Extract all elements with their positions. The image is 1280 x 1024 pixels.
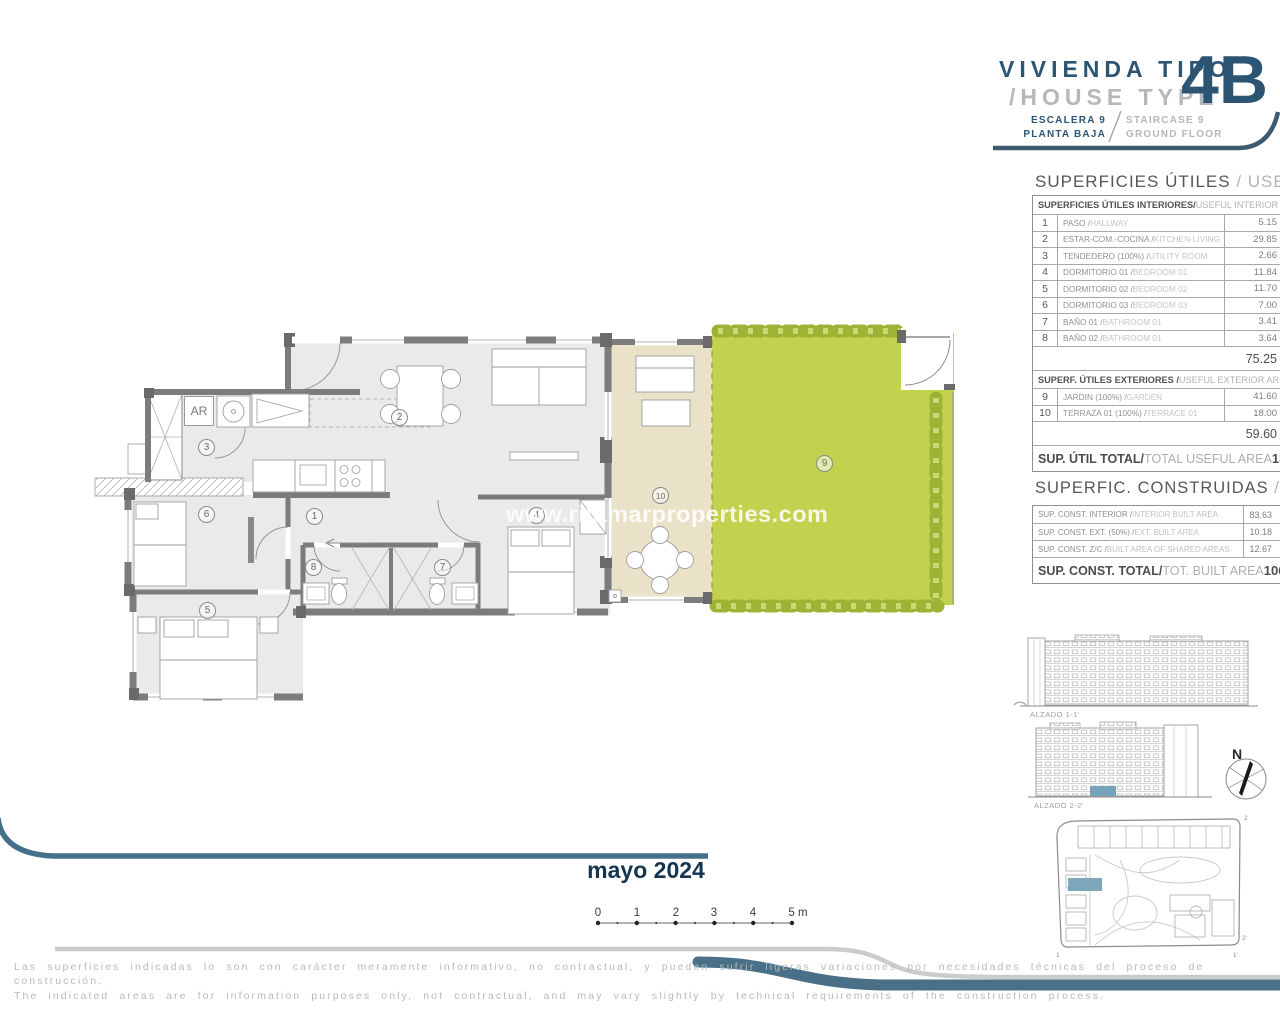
scale-tick-5m: 5 m: [788, 907, 807, 919]
useful-total-row: SUP. ÚTIL TOTAL/TOTAL USEFUL AREA134.85: [1033, 445, 1280, 471]
north-arrow-icon: N: [1226, 746, 1266, 799]
table-row: SUP. CONST. Z/C / BUILT AREA OF SHARED A…: [1033, 540, 1280, 557]
room-number-8: 8: [305, 559, 322, 576]
escalera-label: ESCALERA 9: [1000, 114, 1106, 128]
table-row: 7BAÑO 01 / BATHROOM 013.41: [1033, 313, 1280, 330]
wardrobe-ar-label: AR: [184, 396, 214, 426]
elevation-1-label: ALZADO 1-1': [1030, 710, 1080, 719]
planta-label: PLANTA BAJA: [1000, 128, 1106, 142]
chair: [381, 370, 400, 389]
terrace-table: [640, 540, 680, 580]
table-row: 8BAÑO 02 / BATHROOM 013.64: [1033, 330, 1280, 347]
site-marker-2: 2: [1244, 815, 1248, 822]
built-area-title: SUPERFIC. CONSTRUIDAS /BUILT AREA: [1035, 479, 1280, 498]
staircase-floor-es: ESCALERA 9 PLANTA BAJA: [1000, 114, 1106, 142]
built-area-table: SUP. CONST. INTERIOR / INTERIOR BUILT AR…: [1032, 505, 1280, 584]
table-row: SUP. CONST. EXT. (50%) / EXT. BUILT AREA…: [1033, 523, 1280, 540]
exterior-subtotal-row: 59.60: [1033, 421, 1280, 445]
disclaimer-en: The indicated areas are for information …: [14, 989, 1268, 1003]
elevation-1: ALZADO 1-1': [1014, 635, 1258, 719]
site-marker-2p: 2': [1242, 935, 1247, 942]
date-label: mayo 2024: [587, 857, 705, 884]
toilet: [332, 584, 347, 605]
built-total-row: SUP. CONST. TOTAL/TOT. BUILT AREA106.49: [1033, 557, 1280, 583]
disclaimer-es: Las superficies indicadas lo son con car…: [14, 960, 1268, 988]
interior-subtotal-row: 75.25: [1033, 346, 1280, 370]
room-number-1: 1: [306, 508, 323, 525]
garden-gate: [897, 328, 955, 390]
room-number-2: 2: [391, 409, 408, 426]
highlighted-unit: [1090, 786, 1116, 796]
chair: [442, 370, 461, 389]
room-number-6: 6: [198, 506, 215, 523]
house-type-code: 4B: [1181, 46, 1268, 114]
interior-header: SUPERFICIES ÚTILES INTERIORES/ USEFUL IN…: [1033, 196, 1280, 214]
elevation-2: ALZADO 2-2': [1028, 722, 1212, 810]
staircase-label: STAIRCASE 9: [1126, 114, 1223, 128]
scale-tick-3: 3: [711, 907, 717, 919]
scale-tick-4: 4: [750, 907, 756, 919]
elevation-2-label: ALZADO 2-2': [1034, 801, 1084, 810]
ground-floor-label: GROUND FLOOR: [1126, 128, 1223, 142]
exterior-header: SUPERF. ÚTILES EXTERIORES / USEFUL EXTER…: [1033, 370, 1280, 388]
scale-tick-1: 1: [634, 907, 640, 919]
terrace-sofa: [636, 356, 694, 392]
toilet: [430, 584, 445, 605]
column: [609, 590, 621, 602]
scale-tick-0: 0: [595, 907, 601, 919]
chair: [442, 405, 461, 424]
room-number-9: 9: [816, 455, 833, 472]
table-row: 3TENDEDERO (100%) / UTILITY ROOM2.66: [1033, 247, 1280, 264]
table-row: 1PASO / HALLWAY5.15: [1033, 214, 1280, 231]
table-row: 6DORMITORIO 03 / BEDROOM 037.00: [1033, 297, 1280, 314]
highlighted-plot: [1068, 878, 1102, 891]
site-marker-1: 1: [1056, 952, 1060, 959]
scale-tick-2: 2: [673, 907, 679, 919]
site-marker-1p: 1': [1233, 952, 1238, 959]
room-number-5: 5: [199, 602, 216, 619]
table-row: 4DORMITORIO 01 / BEDROOM 0111.84: [1033, 264, 1280, 281]
plan-sheet: ALZADO 1-1' ALZADO 2-2' N: [0, 0, 1280, 1024]
table-row: 9JARDIN (100%) / GARDEN41.60: [1033, 388, 1280, 405]
scale-bar: [596, 921, 794, 925]
room-number-3: 3: [198, 439, 215, 456]
tv-bench: [510, 452, 578, 460]
useful-area-title: SUPERFICIES ÚTILES / USEFUL AREA: [1035, 172, 1280, 192]
table-row: SUP. CONST. INTERIOR / INTERIOR BUILT AR…: [1033, 506, 1280, 523]
room-number-7: 7: [434, 559, 451, 576]
table-row: 10TERRAZA 01 (100%) / TERRACE 0118.00: [1033, 405, 1280, 422]
table-row: 2ESTAR-COM.-COCINA / KITCHEN-LIVING29.85: [1033, 231, 1280, 248]
table-row: 5DORMITORIO 02 / BEDROOM 0211.70: [1033, 280, 1280, 297]
site-plan: 2 2' 1 1': [1056, 815, 1248, 959]
watermark: www.ritamarproperties.com: [506, 501, 828, 528]
useful-area-table: SUPERFICIES ÚTILES INTERIORES/ USEFUL IN…: [1032, 195, 1280, 472]
staircase-floor-en: STAIRCASE 9 GROUND FLOOR: [1126, 114, 1223, 142]
title-slash: [1109, 111, 1121, 142]
